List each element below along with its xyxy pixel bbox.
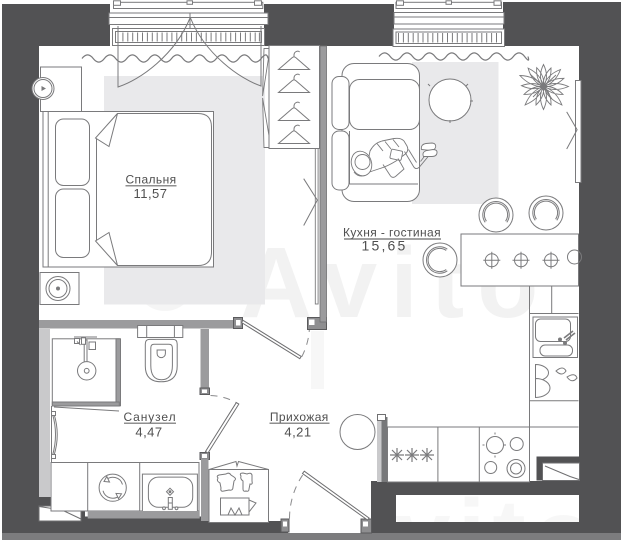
svg-text:Прихожая: Прихожая — [270, 410, 329, 424]
svg-text:15,65: 15,65 — [361, 238, 407, 254]
svg-text:4,21: 4,21 — [284, 424, 311, 439]
svg-text:11,57: 11,57 — [133, 186, 167, 201]
svg-text:Спальня: Спальня — [125, 173, 176, 187]
svg-text:Санузел: Санузел — [123, 410, 176, 424]
svg-text:4,47: 4,47 — [135, 424, 162, 439]
